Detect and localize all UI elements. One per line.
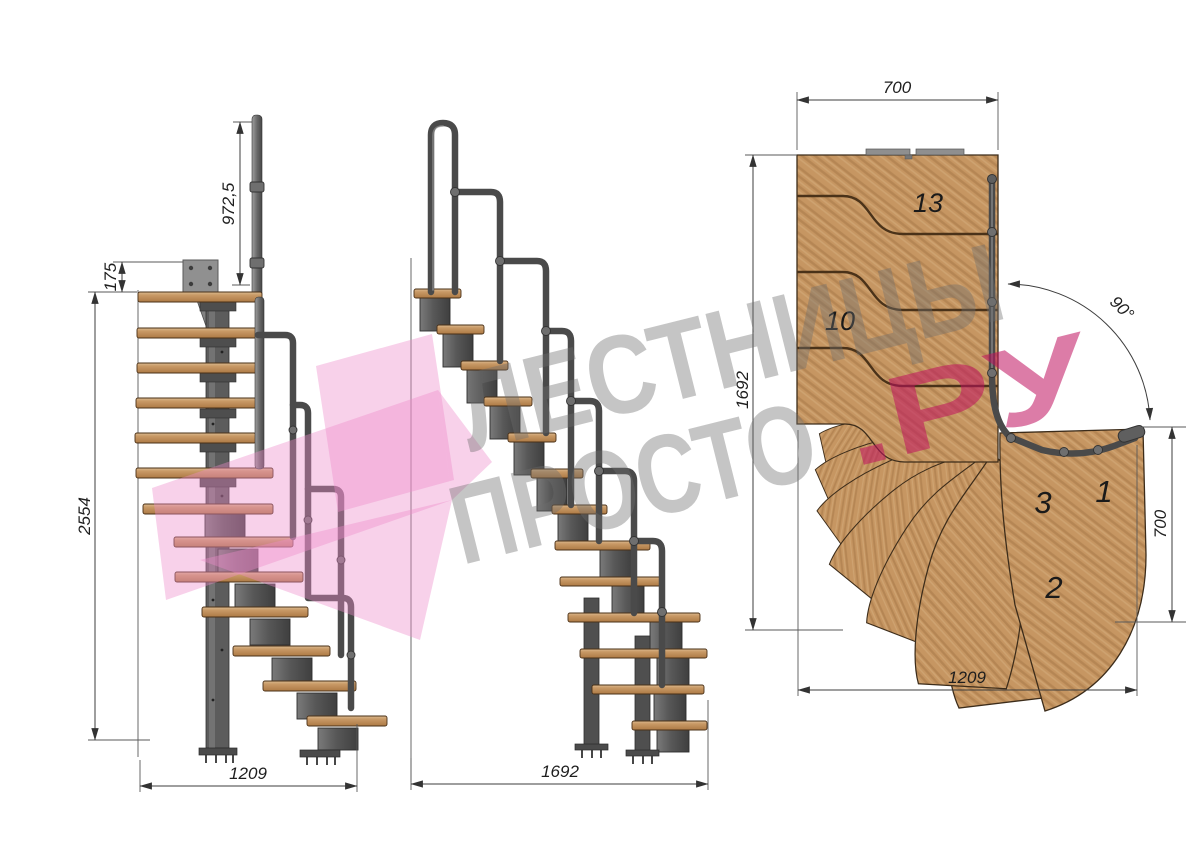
dim-bottom-width-label: 1209: [948, 668, 986, 687]
step-1-label: 1: [1095, 474, 1112, 509]
tread: [437, 325, 484, 334]
dim-rail-height: 972,5: [219, 122, 252, 285]
tread: [137, 363, 262, 373]
dim-base-width-label: 1209: [229, 764, 267, 783]
tread: [138, 292, 262, 302]
drawing-svg: 2554 175 972,5: [0, 0, 1200, 849]
tread: [136, 398, 262, 408]
handrail-post: [252, 115, 262, 297]
step-13-label: 13: [913, 188, 943, 218]
tread: [560, 577, 662, 586]
wall-plate: [183, 260, 218, 292]
tread: [137, 328, 258, 338]
dim-top-width: 700: [797, 78, 998, 150]
tread: [202, 607, 308, 617]
dim-rail-height-label: 972,5: [219, 182, 238, 225]
dim-turn-angle-label: 90°: [1106, 292, 1138, 324]
dim-total-height-label: 2554: [75, 497, 94, 536]
tread: [263, 681, 356, 691]
staircase-technical-drawing: 2554 175 972,5: [0, 0, 1200, 849]
dim-top-width-label: 700: [883, 78, 912, 97]
dim-entry-depth-label: 700: [1151, 509, 1170, 538]
dim-plate-offset-label: 175: [101, 262, 120, 291]
tread: [233, 646, 330, 656]
tread: [592, 685, 704, 694]
tread: [135, 433, 256, 443]
base-flanges: [199, 748, 340, 765]
step-2-label: 2: [1044, 570, 1062, 605]
tread: [632, 721, 707, 730]
dim-plate-offset: 175: [101, 262, 183, 292]
dim-total-height: 2554: [75, 292, 150, 740]
tread: [580, 649, 707, 658]
dim-total-run-label: 1692: [541, 762, 579, 781]
step-3-label: 3: [1034, 485, 1051, 520]
tread: [307, 716, 387, 726]
